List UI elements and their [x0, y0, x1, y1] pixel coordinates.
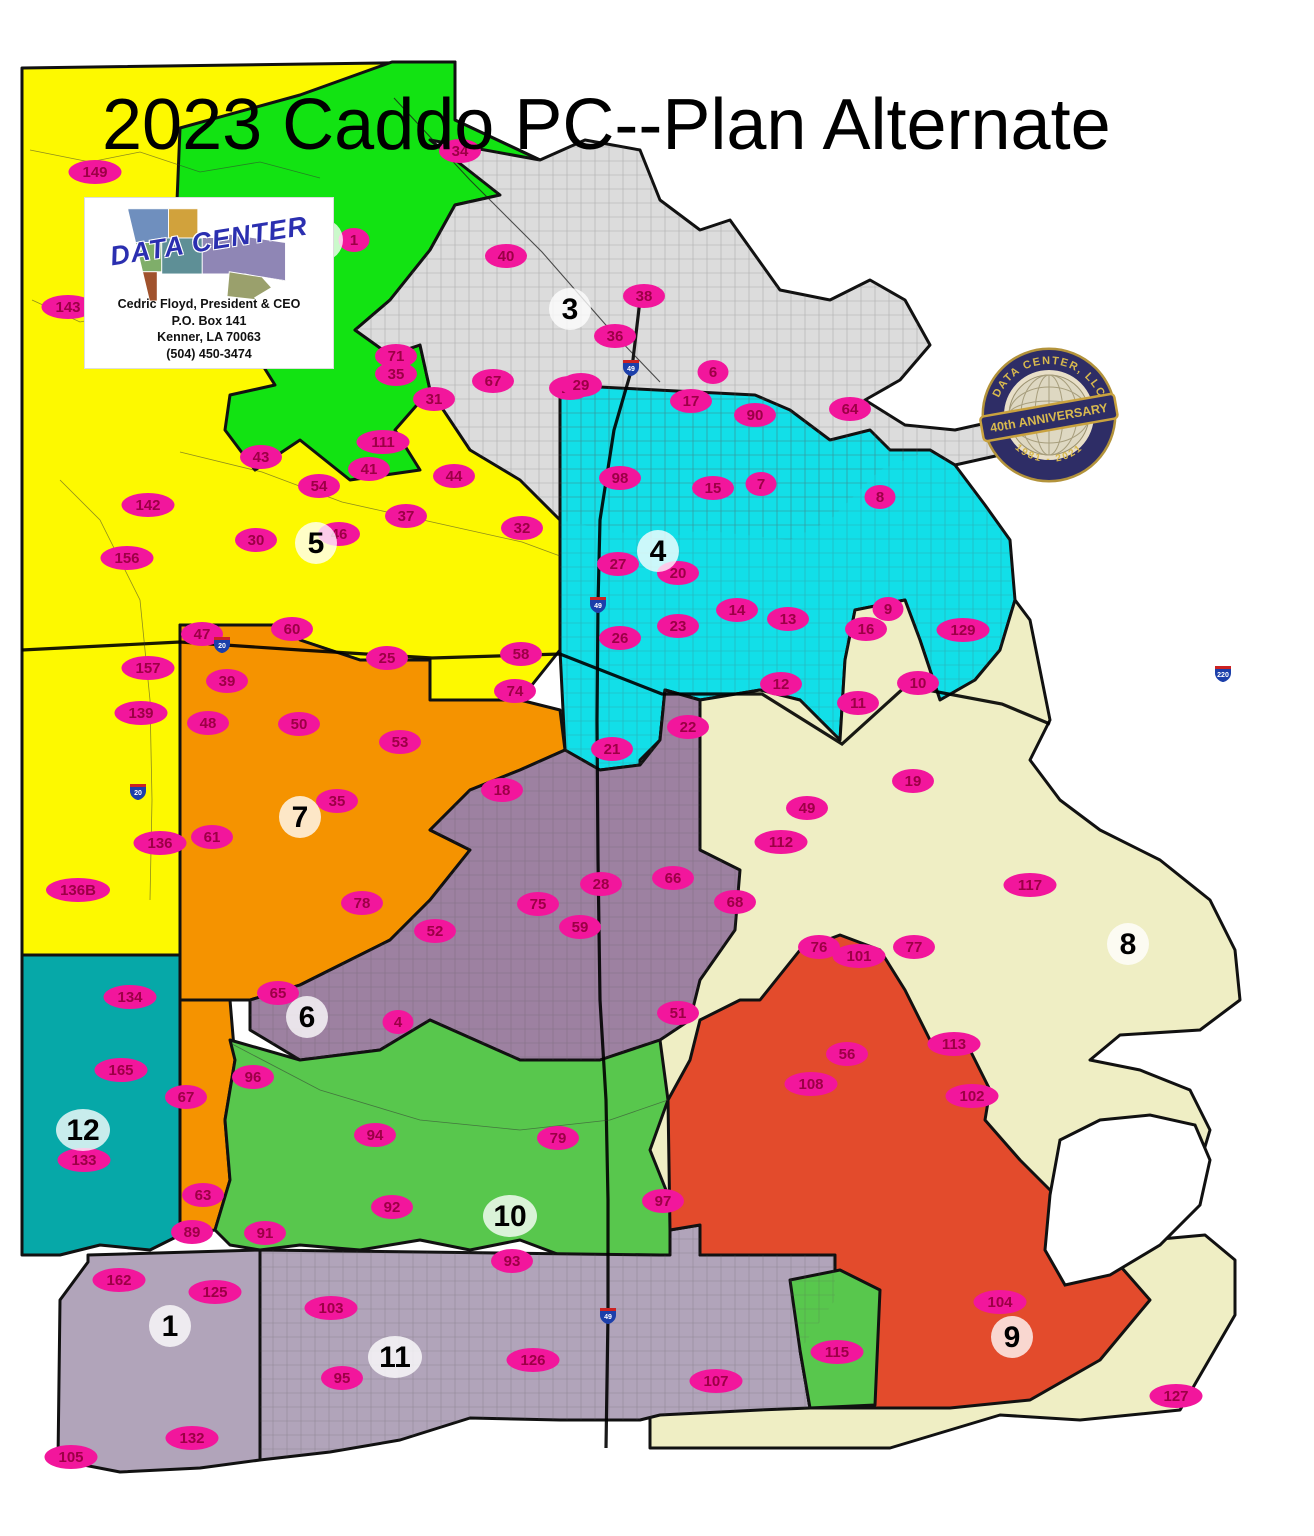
svg-text:30: 30 — [248, 532, 265, 549]
precinct-oval-7: 7 — [746, 472, 777, 496]
svg-text:94: 94 — [367, 1127, 384, 1144]
district-label-8: 8 — [1107, 923, 1149, 965]
svg-text:132: 132 — [179, 1430, 204, 1447]
svg-text:127: 127 — [1163, 1388, 1188, 1405]
svg-text:64: 64 — [842, 401, 859, 418]
svg-text:103: 103 — [318, 1300, 343, 1317]
district-label-5: 5 — [295, 522, 337, 564]
svg-text:67: 67 — [178, 1089, 195, 1106]
precinct-oval-102: 102 — [946, 1084, 999, 1108]
svg-text:32: 32 — [514, 520, 531, 537]
precinct-oval-107: 107 — [690, 1369, 743, 1393]
precinct-oval-39: 39 — [206, 669, 248, 693]
precinct-oval-103: 103 — [305, 1296, 358, 1320]
svg-text:125: 125 — [202, 1284, 227, 1301]
precinct-oval-162: 162 — [93, 1268, 146, 1292]
precinct-oval-23: 23 — [657, 614, 699, 638]
svg-text:115: 115 — [825, 1344, 849, 1361]
svg-text:98: 98 — [612, 470, 629, 487]
svg-text:165: 165 — [108, 1062, 133, 1079]
precinct-oval-51: 51 — [657, 1001, 699, 1025]
precinct-oval-65: 65 — [257, 981, 299, 1005]
precinct-oval-67: 67 — [472, 369, 514, 393]
svg-text:136: 136 — [147, 835, 172, 852]
precinct-oval-18: 18 — [481, 778, 523, 802]
svg-text:11: 11 — [850, 695, 866, 712]
svg-text:3: 3 — [562, 293, 579, 326]
svg-text:7: 7 — [292, 801, 309, 834]
svg-text:16: 16 — [858, 621, 875, 638]
precinct-oval-115: 115 — [811, 1340, 864, 1364]
svg-text:93: 93 — [504, 1253, 521, 1270]
logo-line-1: Cedric Floyd, President & CEO — [85, 296, 333, 313]
district-label-1: 1 — [149, 1305, 191, 1347]
precinct-oval-40: 40 — [485, 244, 527, 268]
svg-text:97: 97 — [655, 1193, 672, 1210]
svg-text:61: 61 — [204, 829, 221, 846]
precinct-oval-97: 97 — [642, 1189, 684, 1213]
interstate-220-shield: 220 — [1215, 666, 1231, 682]
svg-text:102: 102 — [959, 1088, 984, 1105]
svg-text:76: 76 — [811, 939, 828, 956]
svg-text:162: 162 — [106, 1272, 131, 1289]
svg-text:47: 47 — [194, 626, 211, 643]
precinct-oval-93: 93 — [491, 1249, 533, 1273]
svg-text:31: 31 — [426, 391, 443, 408]
precinct-oval-52: 52 — [414, 919, 456, 943]
svg-text:11: 11 — [379, 1341, 411, 1374]
precinct-oval-26: 26 — [599, 626, 641, 650]
precinct-oval-14: 14 — [716, 598, 758, 622]
svg-text:51: 51 — [670, 1005, 687, 1022]
district-label-4: 4 — [637, 530, 679, 572]
svg-text:79: 79 — [550, 1130, 567, 1147]
svg-text:95: 95 — [334, 1370, 351, 1387]
precinct-oval-112: 112 — [755, 830, 808, 854]
svg-text:89: 89 — [184, 1224, 201, 1241]
svg-text:5: 5 — [308, 527, 325, 560]
precinct-oval-12: 12 — [760, 672, 802, 696]
district-label-6: 6 — [286, 996, 328, 1038]
svg-text:7: 7 — [757, 476, 765, 493]
svg-text:4: 4 — [650, 535, 667, 568]
data-center-logo: DATA CENTER Cedric Floyd, President & CE… — [85, 198, 333, 368]
precinct-oval-25: 25 — [366, 646, 408, 670]
svg-text:12: 12 — [773, 676, 790, 693]
precinct-oval-96: 96 — [232, 1065, 274, 1089]
svg-text:156: 156 — [114, 550, 139, 567]
svg-text:220: 220 — [1217, 672, 1229, 679]
precinct-oval-156: 156 — [101, 546, 154, 570]
svg-text:96: 96 — [245, 1069, 262, 1086]
svg-text:157: 157 — [135, 660, 160, 677]
svg-text:1: 1 — [350, 232, 358, 249]
precinct-oval-74: 74 — [494, 679, 536, 703]
svg-text:36: 36 — [607, 328, 624, 345]
svg-text:111: 111 — [371, 434, 394, 451]
svg-text:104: 104 — [987, 1294, 1013, 1311]
precinct-oval-134: 134 — [104, 985, 157, 1009]
svg-text:68: 68 — [727, 894, 744, 911]
precinct-oval-15: 15 — [692, 476, 734, 500]
svg-text:6: 6 — [299, 1001, 316, 1034]
precinct-oval-63: 63 — [182, 1183, 224, 1207]
svg-text:10: 10 — [910, 675, 927, 692]
precinct-oval-49: 49 — [786, 796, 828, 820]
precinct-oval-17: 17 — [670, 389, 712, 413]
precinct-oval-61: 61 — [191, 825, 233, 849]
svg-text:9: 9 — [1004, 1321, 1021, 1354]
svg-text:49: 49 — [604, 1314, 612, 1321]
precinct-oval-75: 75 — [517, 892, 559, 916]
svg-text:35: 35 — [388, 366, 405, 383]
precinct-oval-95: 95 — [321, 1366, 363, 1390]
svg-text:139: 139 — [128, 705, 153, 722]
precinct-oval-16: 16 — [845, 617, 887, 641]
precinct-oval-34: 34 — [439, 139, 481, 163]
svg-text:37: 37 — [398, 508, 415, 525]
precinct-oval-60: 60 — [271, 617, 313, 641]
svg-text:133: 133 — [71, 1152, 96, 1169]
svg-text:75: 75 — [530, 896, 547, 913]
svg-text:107: 107 — [703, 1373, 728, 1390]
precinct-oval-28: 28 — [580, 872, 622, 896]
svg-text:9: 9 — [884, 601, 892, 618]
svg-text:54: 54 — [311, 478, 328, 495]
precinct-oval-29: 29 — [560, 373, 602, 397]
svg-text:90: 90 — [747, 407, 764, 424]
precinct-oval-22: 22 — [667, 715, 709, 739]
logo-line-3: Kenner, LA 70063 — [85, 329, 333, 346]
svg-text:126: 126 — [520, 1352, 545, 1369]
precinct-oval-126: 126 — [507, 1348, 560, 1372]
precinct-oval-8: 8 — [865, 485, 896, 509]
svg-text:13: 13 — [780, 611, 797, 628]
svg-text:14: 14 — [729, 602, 746, 619]
svg-text:49: 49 — [627, 366, 635, 373]
svg-text:52: 52 — [427, 923, 444, 940]
svg-text:108: 108 — [798, 1076, 823, 1093]
logo-address: Cedric Floyd, President & CEO P.O. Box 1… — [85, 296, 333, 362]
svg-text:50: 50 — [291, 716, 308, 733]
svg-text:134: 134 — [117, 989, 143, 1006]
district-label-12: 12 — [56, 1109, 110, 1151]
precinct-oval-129: 129 — [937, 618, 990, 642]
precinct-oval-35: 35 — [316, 789, 358, 813]
svg-text:27: 27 — [610, 556, 627, 573]
precinct-oval-111: 111 — [357, 430, 410, 454]
precinct-oval-50: 50 — [278, 712, 320, 736]
precinct-oval-56: 56 — [826, 1042, 868, 1066]
svg-text:34: 34 — [452, 143, 469, 160]
precinct-oval-44: 44 — [433, 464, 475, 488]
precinct-oval-41: 41 — [348, 457, 390, 481]
precinct-oval-38: 38 — [623, 284, 665, 308]
precinct-oval-31: 31 — [413, 387, 455, 411]
precinct-oval-68: 68 — [714, 890, 756, 914]
precinct-oval-125: 125 — [189, 1280, 242, 1304]
precinct-oval-132: 132 — [166, 1426, 219, 1450]
district-label-10: 10 — [483, 1195, 537, 1237]
precinct-oval-92: 92 — [371, 1195, 413, 1219]
precinct-oval-89: 89 — [171, 1220, 213, 1244]
svg-text:105: 105 — [58, 1449, 83, 1466]
district-label-3: 3 — [549, 288, 591, 330]
precinct-oval-133: 133 — [58, 1148, 111, 1172]
svg-text:38: 38 — [636, 288, 653, 305]
svg-text:142: 142 — [135, 497, 160, 514]
svg-text:15: 15 — [705, 480, 722, 497]
svg-text:20: 20 — [134, 790, 142, 797]
precinct-oval-104: 104 — [974, 1290, 1027, 1314]
precinct-oval-48: 48 — [187, 711, 229, 735]
precinct-oval-13: 13 — [767, 607, 809, 631]
precinct-oval-149: 149 — [69, 160, 122, 184]
svg-text:117: 117 — [1018, 877, 1042, 894]
svg-text:49: 49 — [799, 800, 816, 817]
svg-text:6: 6 — [709, 364, 717, 381]
svg-text:91: 91 — [257, 1225, 274, 1242]
precinct-oval-113: 113 — [928, 1032, 981, 1056]
svg-text:18: 18 — [494, 782, 511, 799]
precinct-oval-1: 1 — [339, 228, 370, 252]
precinct-oval-10: 10 — [897, 671, 939, 695]
precinct-oval-4: 4 — [383, 1010, 414, 1034]
svg-text:19: 19 — [905, 773, 922, 790]
precinct-oval-43: 43 — [240, 445, 282, 469]
precinct-oval-11: 11 — [837, 691, 879, 715]
svg-text:12: 12 — [66, 1114, 99, 1147]
precinct-oval-78: 78 — [341, 891, 383, 915]
precinct-oval-36: 36 — [594, 324, 636, 348]
precinct-oval-101: 101 — [833, 944, 886, 968]
precinct-oval-165: 165 — [95, 1058, 148, 1082]
svg-text:136B: 136B — [60, 882, 96, 899]
svg-text:8: 8 — [1120, 928, 1137, 961]
precinct-oval-54: 54 — [298, 474, 340, 498]
svg-text:58: 58 — [513, 646, 530, 663]
anniversary-badge: DATA CENTER, LLC 1981 - 2021 40th ANNIVE… — [978, 344, 1120, 486]
svg-text:53: 53 — [392, 734, 409, 751]
precinct-oval-66: 66 — [652, 866, 694, 890]
precinct-oval-27: 27 — [597, 552, 639, 576]
precinct-oval-6: 6 — [698, 360, 729, 384]
svg-text:66: 66 — [665, 870, 682, 887]
precinct-oval-58: 58 — [500, 642, 542, 666]
svg-text:28: 28 — [593, 876, 610, 893]
precinct-oval-32: 32 — [501, 516, 543, 540]
precinct-oval-157: 157 — [122, 656, 175, 680]
precinct-oval-105: 105 — [45, 1445, 98, 1469]
logo-line-4: (504) 450-3474 — [85, 346, 333, 363]
svg-text:39: 39 — [219, 673, 236, 690]
precinct-oval-136B: 136B — [46, 878, 110, 902]
svg-text:60: 60 — [284, 621, 301, 638]
svg-text:26: 26 — [612, 630, 629, 647]
svg-text:29: 29 — [573, 377, 590, 394]
svg-text:143: 143 — [55, 299, 80, 316]
district-12-region — [22, 955, 180, 1255]
precinct-oval-77: 77 — [893, 935, 935, 959]
precinct-oval-79: 79 — [537, 1126, 579, 1150]
precinct-oval-9: 9 — [873, 597, 904, 621]
precinct-oval-19: 19 — [892, 769, 934, 793]
svg-text:49: 49 — [594, 603, 602, 610]
svg-text:4: 4 — [394, 1014, 403, 1031]
district-label-9: 9 — [991, 1316, 1033, 1358]
svg-text:112: 112 — [769, 834, 793, 851]
precinct-oval-30: 30 — [235, 528, 277, 552]
svg-text:23: 23 — [670, 618, 687, 635]
precinct-oval-117: 117 — [1004, 873, 1057, 897]
svg-text:63: 63 — [195, 1187, 212, 1204]
precinct-oval-108: 108 — [785, 1072, 838, 1096]
svg-text:129: 129 — [950, 622, 975, 639]
precinct-oval-136: 136 — [134, 831, 187, 855]
svg-text:67: 67 — [485, 373, 502, 390]
precinct-oval-37: 37 — [385, 504, 427, 528]
svg-text:101: 101 — [846, 948, 871, 965]
precinct-oval-142: 142 — [122, 493, 175, 517]
svg-text:43: 43 — [253, 449, 270, 466]
svg-text:41: 41 — [361, 461, 378, 478]
district-label-11: 11 — [368, 1336, 422, 1378]
precinct-oval-59: 59 — [559, 915, 601, 939]
svg-text:1: 1 — [162, 1310, 179, 1343]
svg-text:20: 20 — [670, 565, 687, 582]
svg-text:74: 74 — [507, 683, 524, 700]
svg-text:92: 92 — [384, 1199, 401, 1216]
precinct-oval-64: 64 — [829, 397, 871, 421]
svg-text:17: 17 — [683, 393, 700, 410]
svg-text:44: 44 — [446, 468, 463, 485]
precinct-oval-53: 53 — [379, 730, 421, 754]
svg-text:48: 48 — [200, 715, 217, 732]
svg-text:22: 22 — [680, 719, 697, 736]
precinct-oval-21: 21 — [591, 737, 633, 761]
precinct-oval-35: 35 — [375, 362, 417, 386]
svg-text:40: 40 — [498, 248, 515, 265]
svg-text:77: 77 — [906, 939, 923, 956]
svg-text:25: 25 — [379, 650, 396, 667]
precinct-oval-67: 67 — [165, 1085, 207, 1109]
precinct-oval-91: 91 — [244, 1221, 286, 1245]
svg-text:149: 149 — [82, 164, 107, 181]
precinct-oval-94: 94 — [354, 1123, 396, 1147]
svg-text:65: 65 — [270, 985, 287, 1002]
map-page: 14914314215615713947136136B1341651331621… — [0, 0, 1314, 1536]
svg-text:56: 56 — [839, 1046, 856, 1063]
precinct-oval-90: 90 — [734, 403, 776, 427]
svg-text:10: 10 — [493, 1200, 526, 1233]
svg-text:8: 8 — [876, 489, 884, 506]
svg-text:20: 20 — [218, 643, 226, 650]
district-label-7: 7 — [279, 796, 321, 838]
svg-text:113: 113 — [942, 1036, 966, 1053]
svg-text:59: 59 — [572, 919, 589, 936]
svg-text:78: 78 — [354, 895, 371, 912]
svg-text:21: 21 — [604, 741, 621, 758]
precinct-oval-98: 98 — [599, 466, 641, 490]
precinct-oval-139: 139 — [115, 701, 168, 725]
svg-text:35: 35 — [329, 793, 346, 810]
precinct-oval-127: 127 — [1150, 1384, 1203, 1408]
logo-line-2: P.O. Box 141 — [85, 313, 333, 330]
